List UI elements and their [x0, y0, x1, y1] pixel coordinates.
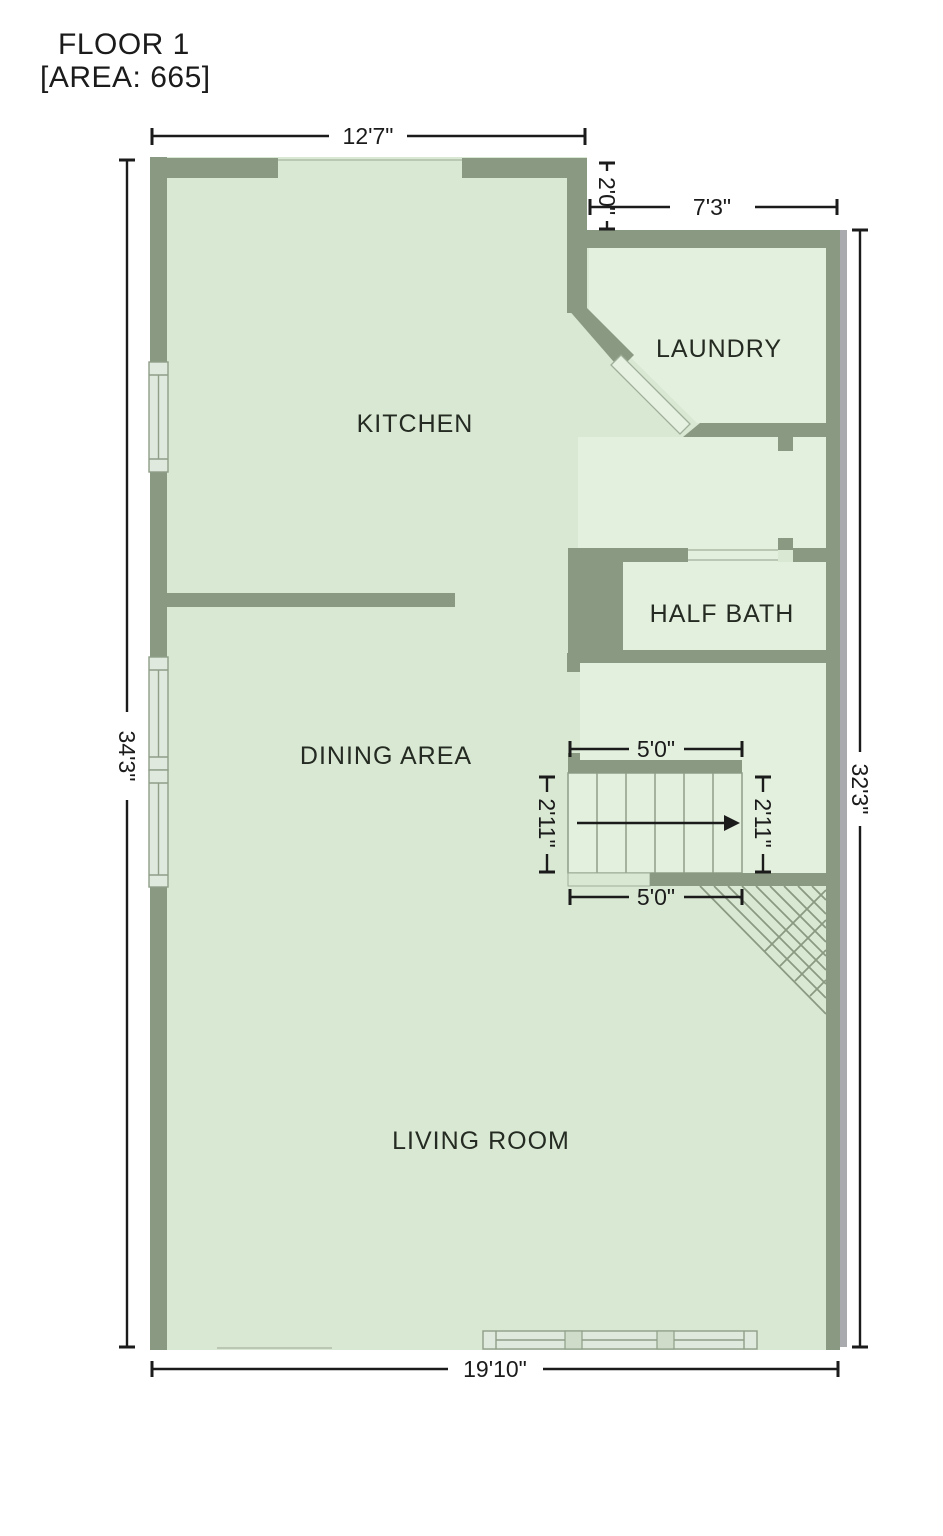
room-highlight-stair-hall: [580, 663, 826, 760]
dining-window-upper: [149, 657, 168, 770]
wall-right-shadow: [840, 230, 847, 1347]
wall-kitchen-right-step: [567, 178, 587, 313]
dim-label-right-height: 32'3": [847, 764, 873, 815]
floor-plan-drawing: 12'7" 2'0" 7'3" 34'3": [0, 0, 943, 1536]
room-label-dining: DINING AREA: [300, 742, 472, 770]
wall-right-exterior: [826, 230, 840, 1350]
wall-laundry-top: [587, 230, 840, 248]
dimension-wall-step: 2'0": [594, 163, 620, 229]
room-label-half-bath: HALF BATH: [650, 600, 795, 628]
dimension-kitchen-top-width: 12'7": [152, 123, 585, 149]
wall-hall-door-jamb-top: [778, 437, 793, 451]
dim-label-stairs-left: 2'11": [534, 798, 560, 847]
kitchen-window: [149, 362, 168, 472]
stairs: [568, 773, 742, 886]
room-label-kitchen: KITCHEN: [357, 410, 474, 438]
dimension-left-total-height: 34'3": [114, 160, 140, 1347]
dim-label-stairs-bottom: 5'0": [637, 884, 675, 910]
wall-chase-stub: [567, 653, 580, 672]
wall-top-left: [150, 158, 278, 178]
floor-plan-canvas: FLOOR 1 [AREA: 665]: [0, 0, 943, 1536]
dining-window-lower: [149, 770, 168, 887]
wall-stair-bottom: [650, 873, 840, 886]
wall-kitchen-dining-divider: [167, 593, 455, 607]
dimension-bottom-total-width: 19'10": [152, 1356, 838, 1382]
wall-half-bath-top-right: [793, 548, 826, 562]
dim-label-bottom-width: 19'10": [463, 1356, 527, 1382]
dim-label-wall-step: 2'0": [594, 177, 620, 215]
room-label-living: LIVING ROOM: [392, 1127, 570, 1155]
wall-half-bath-bottom: [583, 650, 840, 663]
room-highlight-hall: [578, 437, 826, 548]
wall-laundry-bottom: [683, 423, 840, 437]
dimension-laundry-top-width: 7'3": [590, 194, 837, 220]
wall-half-bath-chase: [568, 548, 623, 663]
wall-top-right: [462, 158, 587, 178]
dim-label-kitchen-top: 12'7": [343, 123, 394, 149]
dim-label-laundry-top: 7'3": [693, 194, 731, 220]
dimension-right-total-height: 32'3": [847, 230, 873, 1347]
wall-hall-door-jamb-bottom: [778, 538, 793, 550]
living-room-triple-window: [483, 1331, 757, 1349]
dim-label-left-height: 34'3": [114, 731, 140, 782]
room-label-laundry: LAUNDRY: [656, 335, 782, 363]
dim-label-stairs-right: 2'11": [750, 798, 776, 847]
dim-label-stairs-top: 5'0": [637, 736, 675, 762]
